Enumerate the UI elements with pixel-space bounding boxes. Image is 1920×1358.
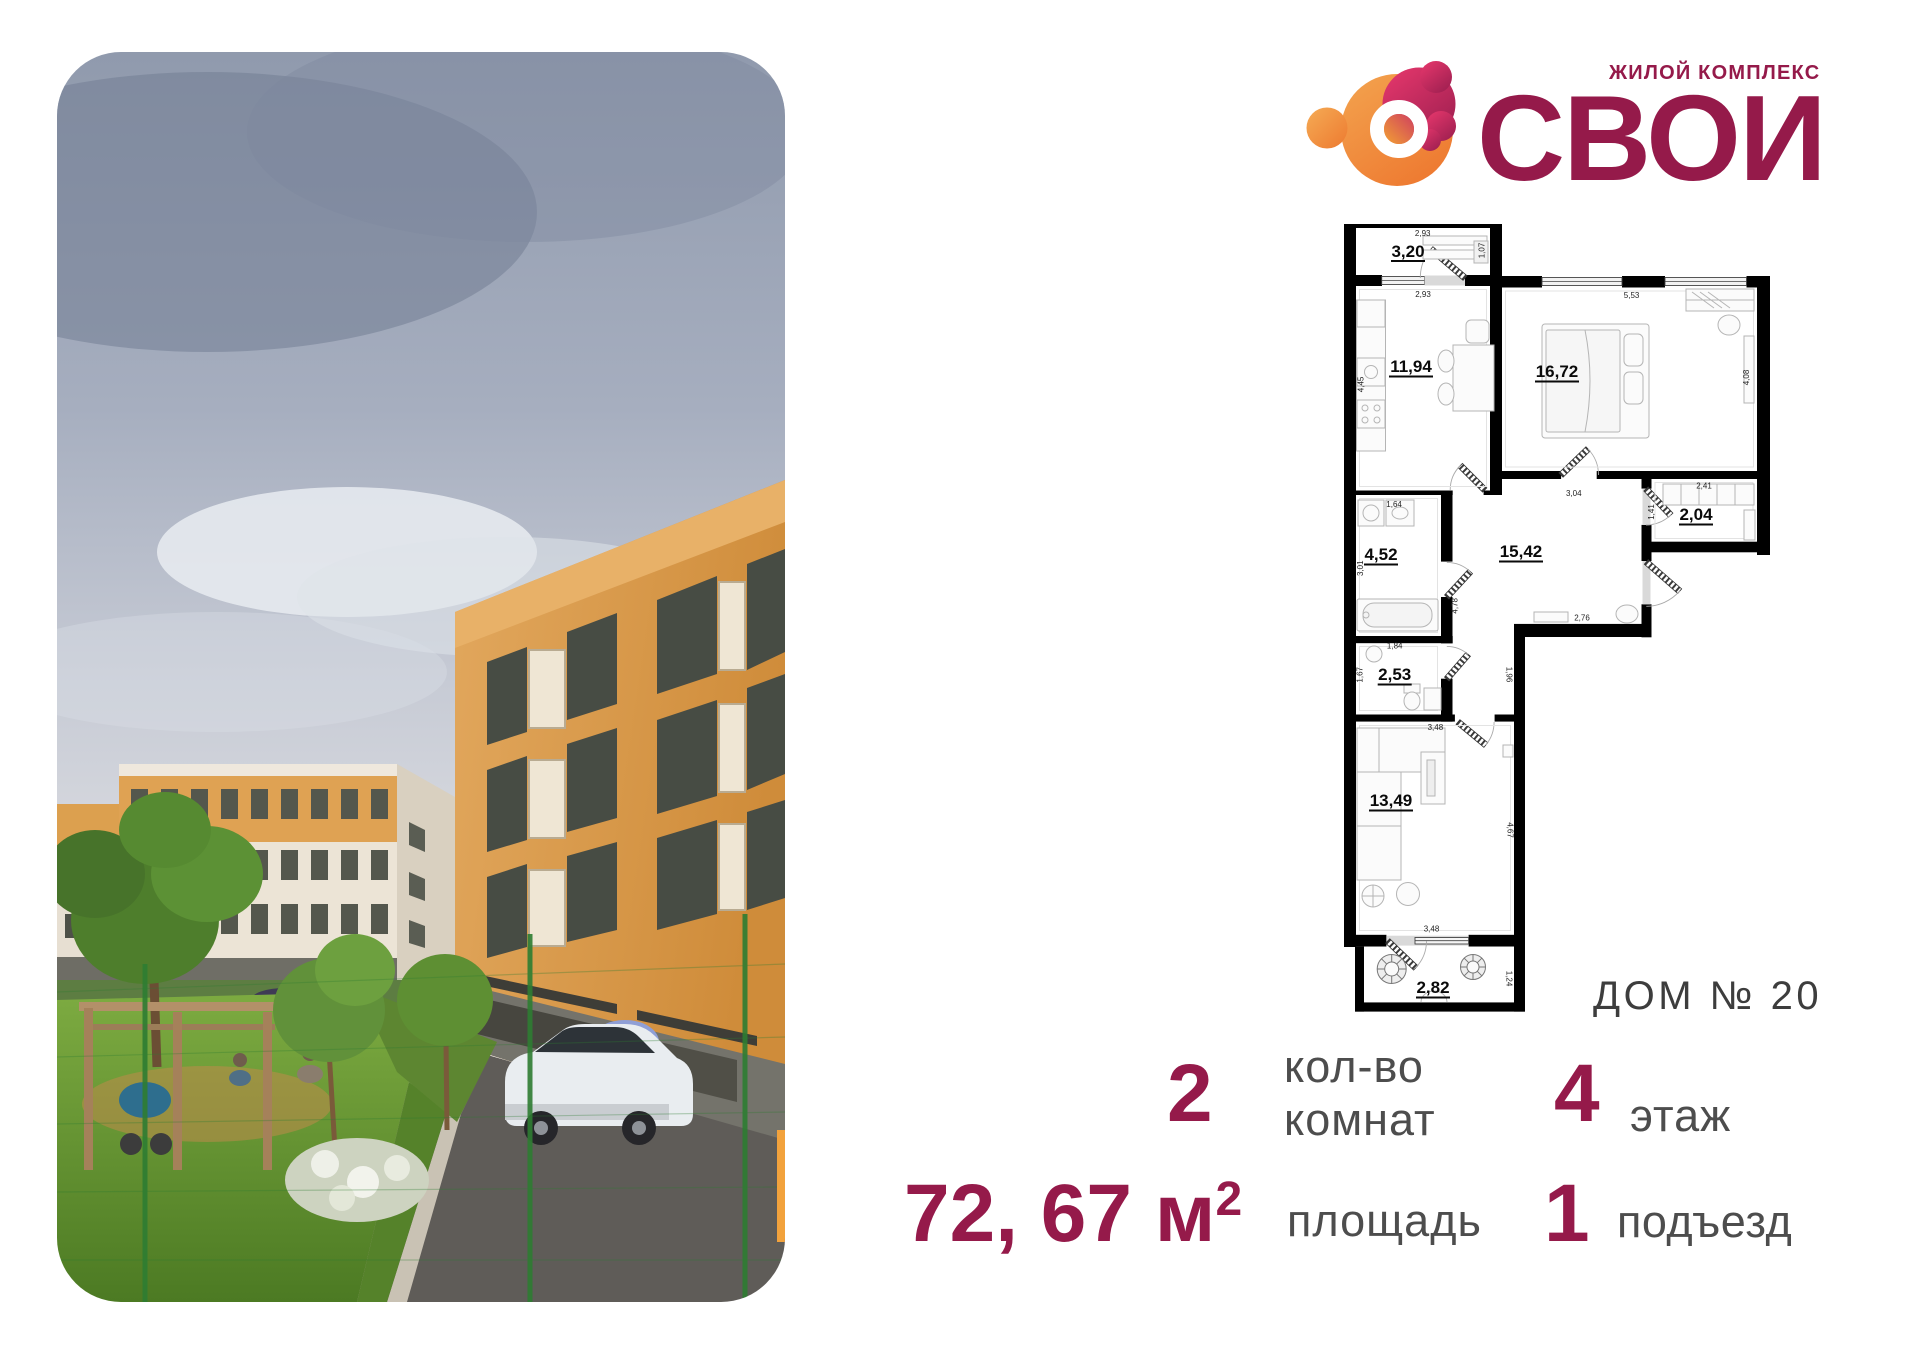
svg-text:3,48: 3,48 — [1424, 925, 1440, 934]
svg-text:4,45: 4,45 — [1357, 376, 1366, 392]
svg-text:1,41: 1,41 — [1647, 504, 1656, 520]
svg-text:2,93: 2,93 — [1415, 229, 1431, 238]
svg-text:4,67: 4,67 — [1506, 822, 1515, 838]
svg-text:4,78: 4,78 — [1451, 597, 1460, 613]
svg-text:2,04: 2,04 — [1679, 505, 1713, 524]
svg-text:5,53: 5,53 — [1624, 291, 1640, 300]
svg-text:4,08: 4,08 — [1742, 369, 1751, 385]
svg-text:2,41: 2,41 — [1696, 482, 1712, 491]
svg-text:16,72: 16,72 — [1536, 362, 1579, 381]
svg-text:2,76: 2,76 — [1574, 614, 1590, 623]
svg-text:3,04: 3,04 — [1566, 489, 1582, 498]
svg-text:1,96: 1,96 — [1505, 667, 1514, 683]
svg-text:1,07: 1,07 — [1478, 242, 1487, 258]
svg-text:2,82: 2,82 — [1416, 978, 1449, 997]
svg-text:2,93: 2,93 — [1415, 290, 1431, 299]
svg-text:3,48: 3,48 — [1428, 723, 1444, 732]
svg-text:15,42: 15,42 — [1500, 542, 1543, 561]
svg-text:1,84: 1,84 — [1387, 642, 1403, 651]
svg-text:3,20: 3,20 — [1391, 242, 1424, 261]
svg-text:1,24: 1,24 — [1504, 971, 1513, 987]
svg-text:2,53: 2,53 — [1378, 665, 1411, 684]
svg-text:1,64: 1,64 — [1386, 500, 1402, 509]
svg-text:11,94: 11,94 — [1390, 357, 1432, 376]
svg-text:1,67: 1,67 — [1356, 666, 1365, 682]
svg-text:3,01: 3,01 — [1356, 560, 1365, 576]
svg-text:13,49: 13,49 — [1370, 791, 1413, 810]
svg-text:4,52: 4,52 — [1364, 545, 1397, 564]
